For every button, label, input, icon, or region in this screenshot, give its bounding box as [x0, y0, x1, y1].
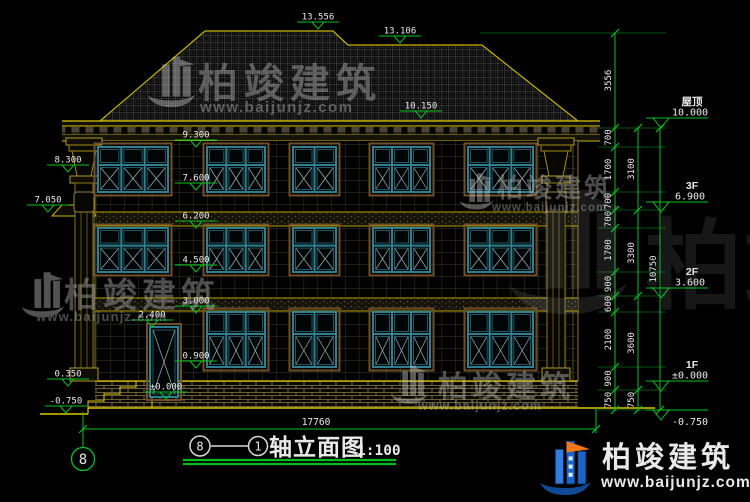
dimension-value: 3100 — [627, 158, 637, 180]
dimension-value: 3556 — [604, 70, 614, 92]
elevation-value: 0.900 — [182, 352, 209, 362]
svg-text:1: 1 — [254, 440, 261, 454]
elevation-value: 10.150 — [405, 102, 438, 112]
elevation-value: 7.600 — [182, 174, 209, 184]
elevation-value: 6.200 — [182, 212, 209, 222]
window-frame — [373, 228, 430, 272]
window — [204, 225, 269, 276]
elevation-value: 9.300 — [182, 131, 209, 141]
elevation-value: 0.350 — [54, 370, 81, 380]
total-width-value: 17760 — [302, 417, 331, 428]
floor-elevation: 10.000 — [672, 108, 708, 119]
window — [95, 144, 172, 196]
window-frame — [373, 312, 430, 367]
brand-url: www.baijunjz.com — [491, 202, 607, 214]
brand-name: 柏竣建筑 — [645, 211, 750, 321]
window-frame — [373, 147, 430, 192]
drawing-title: 轴立面图 — [269, 434, 365, 460]
window — [204, 144, 269, 196]
window — [465, 225, 537, 276]
elevation-drawing: 3556700170070070017009006002100900750310… — [0, 0, 750, 502]
window — [465, 309, 537, 371]
floor-label: 3F — [686, 180, 699, 192]
rain-hopper — [74, 192, 94, 212]
window — [290, 309, 340, 371]
cad-drawing-canvas: 3556700170070070017009006002100900750310… — [0, 0, 750, 502]
elevation-value: 7.050 — [34, 196, 61, 206]
axis-number: 8 — [79, 452, 87, 468]
floor-label: 1F — [686, 359, 699, 371]
floor-elevation: 6.900 — [675, 192, 705, 203]
brand-name: 柏竣建筑 — [497, 173, 613, 203]
dimension-value: 2100 — [604, 329, 614, 351]
dimension-value: 3600 — [627, 332, 637, 354]
elevation-value: 13.106 — [384, 27, 417, 37]
svg-text:8: 8 — [196, 440, 203, 454]
brand-url: www.baijunjz.com — [417, 399, 542, 413]
elevation-value: -0.750 — [50, 397, 83, 407]
floor-elevation: ±0.000 — [672, 371, 708, 382]
window — [290, 225, 340, 276]
window — [95, 225, 172, 276]
drawing-scale: 1:100 — [357, 443, 401, 459]
dimension-value: 750 — [627, 392, 637, 408]
elevation-value: 8.300 — [54, 156, 81, 166]
dimension-value: 700 — [604, 129, 614, 145]
window — [370, 144, 434, 196]
window — [370, 309, 434, 371]
elevation-value: 4.500 — [182, 256, 209, 266]
watermark-right: 柏竣建筑 www.baijunjz.com — [459, 173, 613, 214]
window-frame — [98, 147, 168, 192]
eave-cornice — [62, 121, 600, 141]
dentil-row — [62, 127, 600, 134]
floor-elevation: -0.750 — [672, 417, 708, 428]
window — [370, 225, 434, 276]
floor-label: 屋顶 — [682, 96, 703, 108]
brand-url: www.baijunjz.com — [600, 474, 750, 491]
window-frame — [468, 228, 533, 272]
brand-url: www.baijunjz.com — [35, 309, 167, 324]
window-frame — [207, 147, 265, 192]
dimension-value: 750 — [604, 392, 614, 408]
elevation-value: ±0.000 — [150, 383, 183, 393]
window — [290, 144, 340, 196]
window-frame — [207, 312, 265, 367]
brand-name: 柏竣建筑 — [602, 440, 734, 474]
elevation-value: 13.556 — [302, 13, 335, 23]
dimension-value: 900 — [604, 370, 614, 386]
brand-url: www.baijunjz.com — [199, 99, 353, 116]
dimension-value: 3300 — [627, 242, 637, 264]
window-frame — [468, 312, 533, 367]
window-frame — [98, 228, 168, 272]
